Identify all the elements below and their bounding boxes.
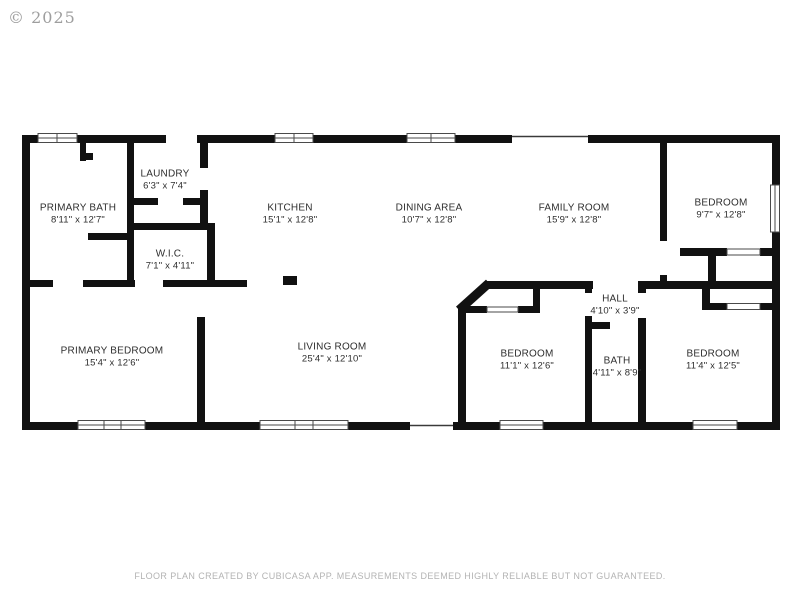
room-label-family-room: FAMILY ROOM 15'9" x 12'8" [539,201,610,226]
room-label-living-room: LIVING ROOM 25'4" x 12'10" [298,340,367,365]
room-name: LAUNDRY [140,167,189,180]
room-label-bedroom-top-right: BEDROOM 9'7" x 12'8" [694,196,747,221]
room-dimensions: 11'1" x 12'6" [500,360,554,372]
floor-plan-drawing [0,0,800,600]
room-label-dining-area: DINING AREA 10'7" x 12'8" [396,201,463,226]
room-label-bedroom-bottom-right: BEDROOM 11'4" x 12'5" [686,347,740,372]
room-name: LIVING ROOM [298,340,367,353]
room-label-primary-bath: PRIMARY BATH 8'11" x 12'7" [40,201,116,226]
angled-wall [459,283,489,310]
room-name: KITCHEN [263,201,318,214]
room-name: PRIMARY BATH [40,201,116,214]
room-label-hall: HALL 4'10" x 3'9" [590,292,639,317]
room-name: DINING AREA [396,201,463,214]
room-label-wic: W.I.C. 7'1" x 4'11" [146,247,195,272]
room-name: FAMILY ROOM [539,201,610,214]
room-dimensions: 7'1" x 4'11" [146,260,195,272]
room-name: BEDROOM [500,347,554,360]
room-label-bath: BATH 4'11" x 8'9" [593,354,642,379]
room-dimensions: 4'11" x 8'9" [593,367,642,379]
footer-disclaimer: FLOOR PLAN CREATED BY CUBICASA APP. MEAS… [0,571,800,581]
room-dimensions: 8'11" x 12'7" [40,214,116,226]
room-label-kitchen: KITCHEN 15'1" x 12'8" [263,201,318,226]
walls [22,135,780,430]
room-dimensions: 15'1" x 12'8" [263,214,318,226]
room-dimensions: 15'4" x 12'6" [61,357,164,369]
room-name: BEDROOM [686,347,740,360]
room-dimensions: 10'7" x 12'8" [396,214,463,226]
room-name: BATH [593,354,642,367]
room-dimensions: 25'4" x 12'10" [298,353,367,365]
room-name: HALL [590,292,639,305]
floor-plan-page: © 2025 [0,0,800,600]
room-dimensions: 11'4" x 12'5" [686,360,740,372]
room-dimensions: 4'10" x 3'9" [590,305,639,317]
room-label-laundry: LAUNDRY 6'3" x 7'4" [140,167,189,192]
room-dimensions: 15'9" x 12'8" [539,214,610,226]
room-label-primary-bedroom: PRIMARY BEDROOM 15'4" x 12'6" [61,344,164,369]
room-dimensions: 6'3" x 7'4" [140,180,189,192]
room-name: BEDROOM [694,196,747,209]
room-dimensions: 9'7" x 12'8" [694,209,747,221]
room-label-bedroom-bottom-middle: BEDROOM 11'1" x 12'6" [500,347,554,372]
room-name: W.I.C. [146,247,195,260]
room-name: PRIMARY BEDROOM [61,344,164,357]
